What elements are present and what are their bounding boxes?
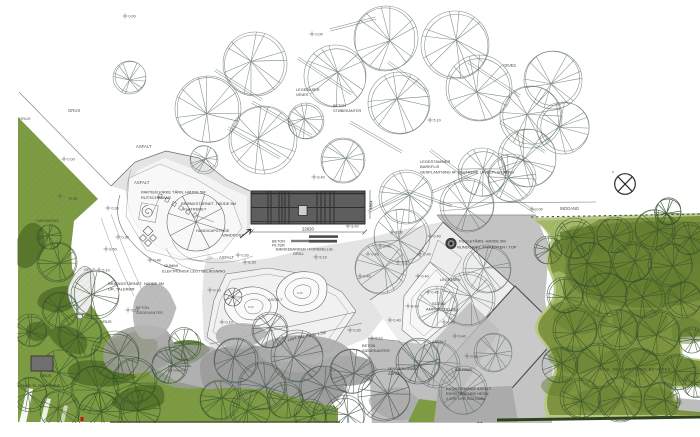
svg-text:0.00: 0.00: [315, 33, 322, 37]
svg-text:N: N: [612, 170, 614, 174]
svg-text:ADGANG TIL RAMPERNE: ADGANG TIL RAMPERNE: [14, 383, 61, 388]
svg-text:8.50: 8.50: [109, 248, 116, 252]
svg-text:0.10: 0.10: [213, 289, 220, 293]
svg-text:0.30: 0.30: [241, 254, 248, 258]
svg-text:GRÆS: GRÆS: [296, 92, 309, 97]
svg-text:5.10: 5.10: [102, 269, 109, 273]
svg-text:0.40: 0.40: [458, 335, 465, 339]
svg-text:0.40: 0.40: [393, 319, 400, 323]
svg-text:0.00: 0.00: [535, 208, 542, 212]
svg-text:GRUS: GRUS: [19, 116, 31, 121]
svg-text:ASFALT: ASFALT: [219, 255, 234, 260]
svg-text:0.40: 0.40: [421, 275, 428, 279]
svg-text:0.30: 0.30: [353, 329, 360, 333]
svg-text:GRUS: GRUS: [68, 108, 80, 113]
svg-text:ASFALT: ASFALT: [136, 144, 152, 149]
svg-text:0.30: 0.30: [121, 236, 128, 240]
svg-text:5.10: 5.10: [319, 256, 326, 260]
svg-text:BRØNDSTÅRNET, HØJDE 5M: BRØNDSTÅRNET, HØJDE 5M: [181, 201, 236, 206]
svg-text:2 STK NYE BOLDMÅL: 2 STK NYE BOLDMÅL: [446, 396, 486, 401]
svg-text:LEGETÅRN: LEGETÅRN: [440, 277, 461, 282]
svg-text:0.00: 0.00: [67, 158, 74, 162]
svg-text:8.30: 8.30: [401, 261, 408, 265]
svg-text:8.40: 8.40: [411, 305, 418, 309]
svg-text:BARKFLIS: BARKFLIS: [420, 164, 440, 169]
svg-text:-0.45: -0.45: [68, 196, 78, 201]
svg-text:8.30: 8.30: [395, 231, 402, 235]
svg-text:HÆK/BUSKE: HÆK/BUSKE: [36, 219, 59, 223]
svg-text:ASFALT: ASFALT: [134, 180, 150, 185]
svg-text:0.30: 0.30: [111, 207, 118, 211]
svg-text:BOLDBUR: BOLDBUR: [455, 368, 472, 372]
svg-text:0.10: 0.10: [225, 321, 232, 325]
svg-text:5.10: 5.10: [131, 309, 138, 313]
svg-text:BETON: BETON: [333, 104, 346, 108]
svg-text:0.45: 0.45: [447, 321, 454, 325]
svg-text:RUNDGANG, KIKKERTER I TOP: RUNDGANG, KIKKERTER I TOP: [457, 245, 517, 250]
svg-text:SIDDEKANTER: SIDDEKANTER: [136, 311, 163, 315]
svg-text:RUTSCHEBANE: RUTSCHEBANE: [141, 195, 172, 200]
svg-text:0.40: 0.40: [433, 235, 440, 239]
svg-text:GRUS: GRUS: [100, 319, 112, 324]
svg-text:GRÆS: GRÆS: [503, 63, 516, 68]
svg-text:0.40: 0.40: [383, 245, 390, 249]
svg-text:ELEKTRONISK LEG I BELÆGNING: ELEKTRONISK LEG I BELÆGNING: [162, 269, 225, 274]
svg-text:0.20: 0.20: [297, 291, 303, 295]
svg-text:GRUS: GRUS: [84, 267, 96, 272]
svg-text:SIDDEKANTER: SIDDEKANTER: [362, 348, 390, 353]
svg-text:8.40: 8.40: [317, 176, 324, 180]
svg-text:0.40: 0.40: [363, 275, 370, 279]
svg-text:22620: 22620: [302, 227, 314, 232]
svg-text:EKSISTERENDE: EKSISTERENDE: [168, 364, 191, 368]
svg-text:BÆNKEBANKER I FORSKELLIG: BÆNKEBANKER I FORSKELLIG: [276, 248, 333, 252]
svg-text:GENPLANTNING AF BEVAREDE LAVBE: GENPLANTNING AF BEVAREDE LAVBEPLANTNING: [420, 170, 514, 175]
svg-text:0.45: 0.45: [371, 253, 378, 257]
svg-text:GRILL: GRILL: [293, 252, 304, 256]
svg-text:GUMMI: GUMMI: [164, 263, 178, 268]
svg-text:0.45: 0.45: [431, 291, 438, 295]
svg-text:5.10: 5.10: [433, 119, 440, 123]
svg-text:GRUS: GRUS: [40, 373, 52, 378]
svg-text:0.48: 0.48: [153, 259, 160, 263]
svg-text:0.40: 0.40: [423, 253, 430, 257]
svg-text:BRÆNDSTÅRNET, HØJDE 5M: BRÆNDSTÅRNET, HØJDE 5M: [108, 281, 164, 286]
svg-text:AMFIOPSTILLING: AMFIOPSTILLING: [426, 307, 458, 312]
svg-text:STØBEKANTER: STØBEKANTER: [333, 109, 362, 113]
svg-text:0.00: 0.00: [128, 15, 135, 19]
svg-text:FUGLETÅRN, HØJDE 5M: FUGLETÅRN, HØJDE 5M: [459, 239, 506, 244]
svg-text:INDGANG: INDGANG: [560, 206, 579, 211]
svg-text:UR, TALERØR: UR, TALERØR: [108, 287, 135, 292]
svg-text:BETONKANT: BETONKANT: [168, 369, 186, 373]
svg-text:ASFALT: ASFALT: [432, 339, 447, 344]
svg-text:VANDPOST: VANDPOST: [222, 233, 244, 238]
svg-text:8.30: 8.30: [248, 261, 255, 265]
svg-text:0.00: 0.00: [470, 355, 477, 359]
svg-text:KLATRENET: KLATRENET: [183, 207, 207, 212]
svg-text:0.20: 0.20: [248, 305, 254, 309]
svg-text:PARTIER KIRKE TÅRN, HØJDE 5M: PARTIER KIRKE TÅRN, HØJDE 5M: [141, 190, 205, 195]
svg-text:SCENE: SCENE: [432, 301, 446, 306]
svg-text:8.40: 8.40: [351, 225, 358, 229]
svg-text:ASFALT: ASFALT: [388, 371, 403, 376]
svg-text:ASFALT: ASFALT: [268, 297, 283, 302]
svg-text:5.10: 5.10: [375, 337, 382, 341]
